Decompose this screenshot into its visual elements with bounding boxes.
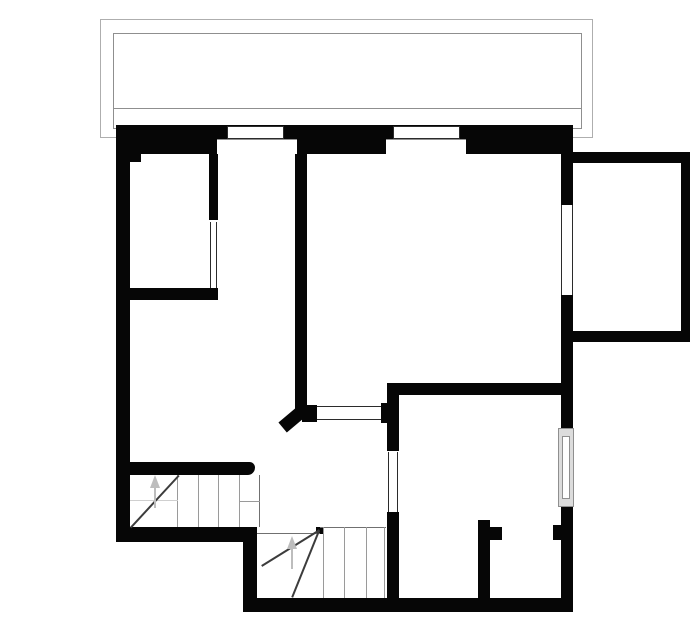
stair-lower-edge [384,527,385,598]
door-room2 [388,452,398,512]
stair-lower-top-edge-right [320,527,386,528]
bay-window-wall-bottom [573,331,690,342]
room2-wall-top [387,383,561,395]
left-inner-corner-step [129,154,141,162]
door-room1 [210,222,217,288]
floor-plan [0,0,700,644]
left-wall [116,125,130,542]
window-right-upper [561,205,573,295]
bay-window-wall-right [681,152,690,342]
bay-window-wall-top [573,152,690,163]
window-top-1-frame [227,126,284,139]
room1-wall-vertical [209,154,218,220]
closet-partition-foot [490,527,502,540]
right-wall-mid [561,295,573,428]
stair-arrow-lower-head [287,536,297,549]
stair-upper-tread-2 [198,475,199,527]
stair-arrow-lower-stem [291,548,293,569]
window-top-2-frame [393,126,460,139]
stair-arrow-upper-head [150,475,160,488]
top-wall [116,125,573,154]
serving-hatch [317,406,381,420]
window-right-lower-inner [562,436,570,499]
stair-upper-tread-3 [218,475,219,527]
stair-arrow-upper-stem [154,487,156,508]
room2-wall-left-upper [387,395,399,451]
stair-lower-tread-1 [323,527,324,598]
stair-side-wall [130,462,255,475]
balcony-deck-line [113,108,582,109]
closet-partition-wall [478,520,490,599]
bottom-wall [243,598,573,612]
stair-lower-tread-3 [366,527,367,598]
room1-wall-bottom [129,288,218,300]
bottom-left-wall [116,527,257,542]
door-stub-right-wall [553,525,561,540]
window-top-1-niche [217,139,297,154]
room2-wall-left-lower [387,512,399,599]
window-top-2-niche [386,139,466,154]
stair-lower-tread-2 [344,527,345,598]
balcony-inner-rail [113,33,582,129]
central-wall [295,154,307,410]
stair-upper-tread-1 [177,475,178,527]
right-wall-lower [561,507,573,612]
right-wall-upper [561,125,573,205]
stair-upper-winder-split [240,501,260,502]
